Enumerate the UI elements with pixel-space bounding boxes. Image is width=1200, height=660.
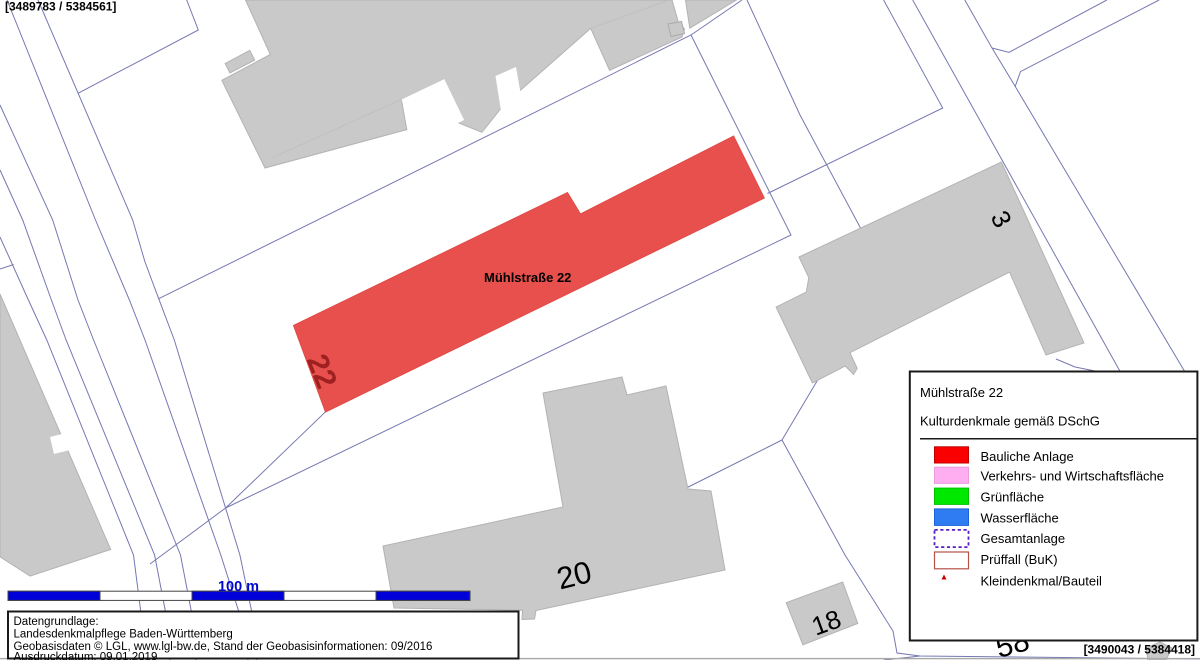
svg-text:Kulturdenkmale gemäß DSchG: Kulturdenkmale gemäß DSchG <box>920 414 1100 429</box>
svg-text:Ausdruckdatum: 09.01.2019: Ausdruckdatum: 09.01.2019 <box>14 652 158 660</box>
svg-text:100 m: 100 m <box>218 579 259 595</box>
svg-text:Datengrundlage:: Datengrundlage: <box>14 616 99 628</box>
svg-text:[3489783 / 5384561]: [3489783 / 5384561] <box>5 0 116 14</box>
svg-text:Mühlstraße 22: Mühlstraße 22 <box>920 385 1003 400</box>
svg-text:Mühlstraße 22: Mühlstraße 22 <box>484 270 571 285</box>
svg-text:Prüffall (BuK): Prüffall (BuK) <box>981 552 1058 567</box>
svg-text:[3490043 / 5384418]: [3490043 / 5384418] <box>1084 643 1195 657</box>
svg-text:Landesdenkmalpflege Baden-Würt: Landesdenkmalpflege Baden-Württemberg <box>14 628 233 640</box>
svg-text:Kleindenkmal/Bauteil: Kleindenkmal/Bauteil <box>981 574 1103 589</box>
svg-text:Wasserfläche: Wasserfläche <box>981 510 1059 525</box>
svg-text:Bauliche Anlage: Bauliche Anlage <box>981 449 1074 464</box>
svg-text:Grünfläche: Grünfläche <box>981 489 1045 504</box>
svg-text:Gesamtanlage: Gesamtanlage <box>981 531 1066 546</box>
svg-text:Verkehrs- und Wirtschaftsfläch: Verkehrs- und Wirtschaftsfläche <box>981 469 1165 484</box>
